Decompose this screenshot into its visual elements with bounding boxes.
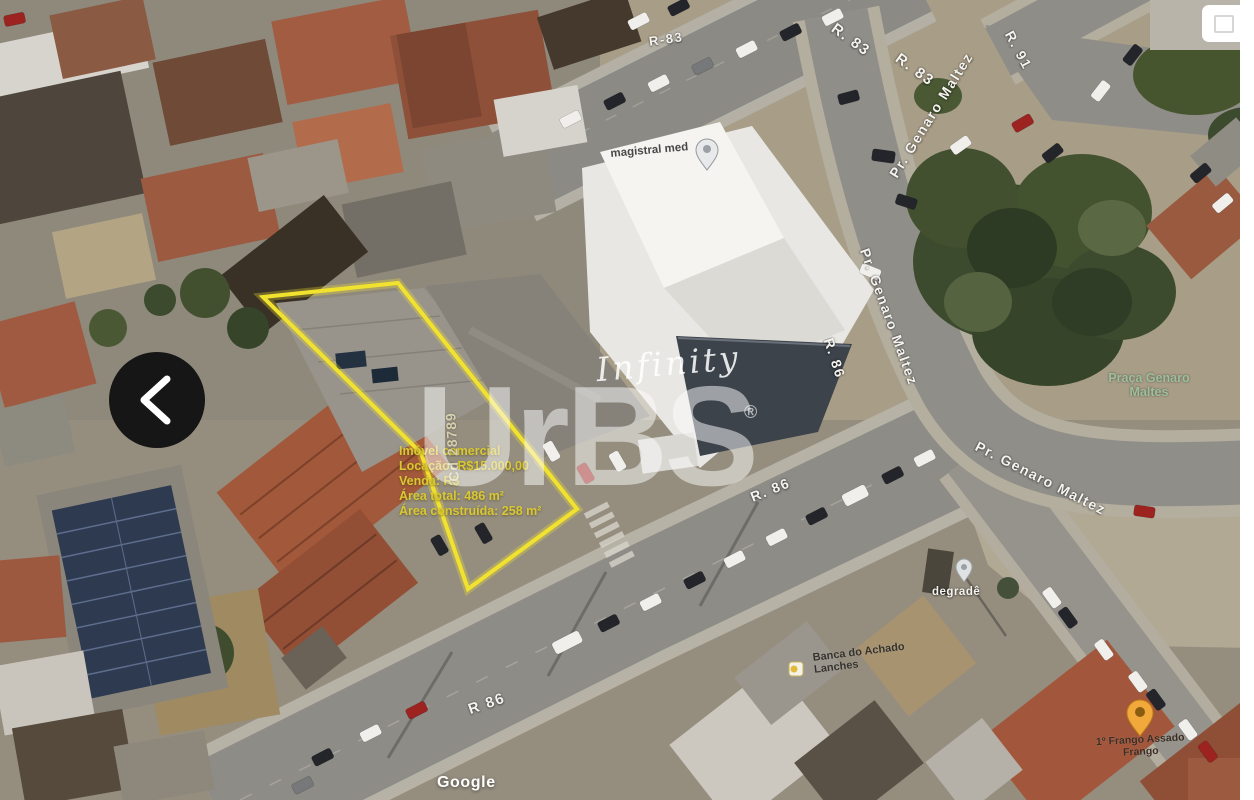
google-logo: Google [437,774,496,792]
registered-mark: ® [744,402,757,423]
previous-photo-button[interactable] [109,352,205,448]
park-label: Praça Genaro Maltes [1103,371,1195,399]
watermark-brand: UrBS [416,372,755,502]
listing-photo-viewer: R-83 R. 83 R. 83 R. 91 Pr. Genaro Maltez… [0,0,1254,800]
park-label-line2: Maltes [1103,385,1195,399]
chevron-left-icon [109,352,205,448]
right-margin [1240,0,1254,800]
poi-label-salon: degradê [932,586,980,598]
park-label-line1: Praça Genaro [1103,371,1195,385]
store-icon [789,662,803,676]
